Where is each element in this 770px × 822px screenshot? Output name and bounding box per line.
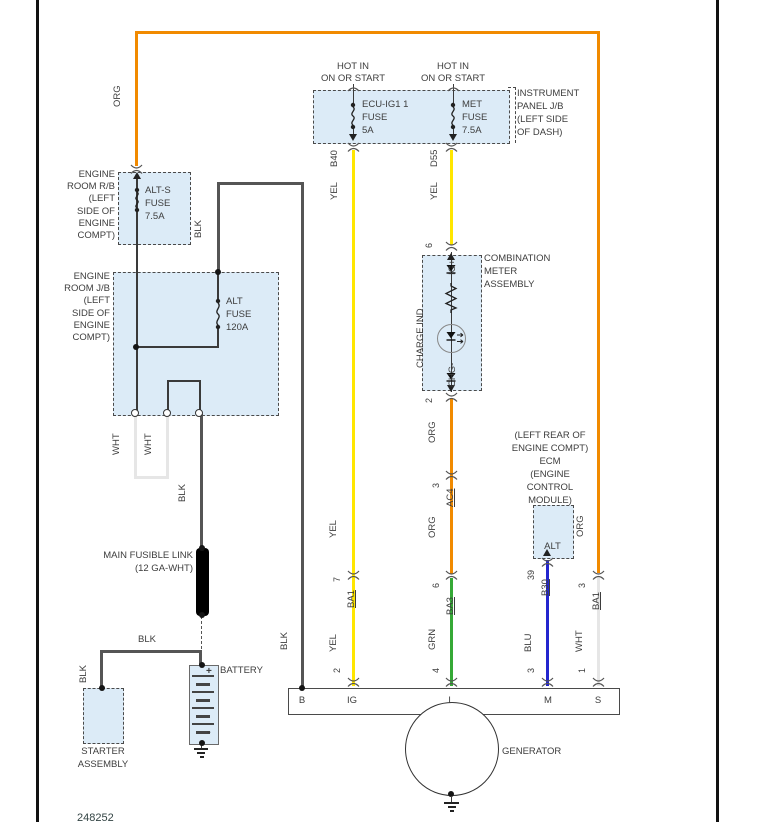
battery-plate (196, 683, 210, 686)
wire-color-label-wht: WHT (112, 433, 122, 455)
engine-room-rb-label-line: ROOM R/B (45, 181, 115, 193)
wire-blk-up (217, 182, 220, 274)
engine-room-rb-label: ENGINE ROOM R/B (LEFT SIDE OF ENGINE COM… (45, 169, 115, 242)
battery-plate (192, 707, 214, 709)
main-fusible-link-symbol (196, 548, 209, 616)
connector-label-b40: B40 (330, 150, 340, 167)
hot-in-left-line1: HOT IN (322, 61, 384, 72)
wire-blk-battery-horizontal (101, 650, 202, 653)
battery-plate (196, 699, 210, 702)
connector-icon-hotin-right (447, 86, 460, 92)
connector-icon-gen-l (445, 677, 458, 687)
connector-pin-ac4: 3 (431, 483, 441, 488)
wire-color-label-grn: GRN (428, 629, 438, 650)
wire-jb-loop-top (167, 380, 201, 382)
combination-meter-label-line: METER (484, 265, 550, 278)
wire-yel-met (450, 150, 453, 245)
meter-chg-minus-label: CHG- (448, 363, 458, 387)
engine-room-jb-label-line: ROOM J/B (40, 283, 110, 295)
ecm-label: (LEFT REAR OF ENGINE COMPT) ECM (ENGINE … (500, 429, 600, 507)
connector-pin-ba1-ig: 7 (332, 577, 342, 582)
generator-terminal-b: B (296, 695, 308, 706)
fuse-symbol-ecu-ig1 (348, 102, 358, 130)
instrument-panel-label-line: OF DASH) (517, 126, 579, 139)
connector-pin-b30: 39 (526, 570, 536, 580)
junction-dot (299, 685, 305, 691)
connector-label-ba1-s: BA1 (592, 592, 602, 610)
instrument-panel-label: INSTRUMENT PANEL J/B (LEFT SIDE OF DASH) (517, 87, 579, 139)
fuse-ecu-ig1-rating: 5A (362, 125, 374, 136)
engine-room-jb-label-line: ENGINE (40, 271, 110, 283)
engine-room-jb-label-line: (LEFT (40, 295, 110, 307)
wire-color-label-blk: BLK (280, 632, 290, 650)
generator-terminal-s: S (592, 695, 604, 706)
hot-in-right-line2: ON OR START (416, 73, 490, 84)
engine-room-rb-label-line: SIDE OF (45, 206, 115, 218)
ecm-label-line: (ENGINE (500, 468, 600, 481)
wire-color-label-wht: WHT (144, 433, 154, 455)
connector-label-ba1-ig: BA1 (347, 590, 357, 608)
battery-positive-terminal-dot (199, 662, 205, 668)
wire-color-label-yel: YEL (329, 634, 339, 652)
wire-color-label-blk: BLK (194, 220, 204, 238)
meter-ig-plus-label: IG+ (448, 259, 458, 275)
junction-dot (199, 545, 205, 551)
engine-room-rb-label-line: ENGINE (45, 218, 115, 230)
reference-number: 248252 (77, 813, 114, 822)
hot-in-left-line2: ON OR START (316, 73, 390, 84)
fuse-ecu-ig1-name: ECU-IG1 1 (362, 99, 408, 110)
fuse-alt-name: ALT (226, 296, 243, 307)
wire-color-label-wht: WHT (575, 630, 585, 652)
main-fusible-link-label: MAIN FUSIBLE LINK (12 GA-WHT) (95, 549, 193, 575)
engine-room-rb-label-line: ENGINE (45, 169, 115, 181)
instrument-panel-label-line: (LEFT SIDE (517, 113, 579, 126)
wire-color-label-org: ORG (428, 516, 438, 538)
junction-dot (215, 269, 221, 275)
blk-label-horizontal: BLK (138, 634, 156, 645)
connector-icon-ba1-ig (347, 570, 360, 580)
ecm-alt-terminal-label: ALT (533, 541, 572, 552)
ecm-label-line: CONTROL (500, 481, 600, 494)
connector-icon-ba3 (445, 570, 458, 580)
wire-blk-to-link (200, 414, 203, 549)
jb-terminal (163, 409, 171, 417)
connector-icon-b30 (541, 557, 554, 567)
wire-org-top-horizontal (135, 31, 600, 34)
battery-ground-icon (200, 756, 204, 758)
generator-ground-icon (444, 802, 459, 804)
fuse-alt-s-rating: 7.5A (145, 211, 165, 222)
hot-in-right-line1: HOT IN (422, 61, 484, 72)
wire-org-left-vertical (135, 31, 138, 166)
wiring-diagram-page: + - B IG L M S GENERATOR (0, 0, 770, 822)
meter-pin-bottom: 2 (424, 398, 434, 403)
wire-color-label-blk: BLK (178, 484, 188, 502)
page-border-right (716, 0, 719, 822)
connector-icon-meter-top (445, 241, 458, 251)
fuse-alt-s-name: ALT-S (145, 185, 171, 196)
meter-pin-top: 6 (424, 243, 434, 248)
connector-icon-hotin-left (347, 86, 360, 92)
engine-room-jb-label-line: SIDE OF (40, 308, 110, 320)
combination-meter-label-line: ASSEMBLY (484, 278, 550, 291)
connector-icon-ba1-s (592, 570, 605, 580)
generator-ground-icon (450, 810, 454, 812)
starter-assembly-label-line: STARTER (72, 745, 134, 758)
generator-pin-m: 3 (526, 668, 536, 673)
battery-plate (196, 715, 210, 718)
fuse-alt-word: FUSE (226, 309, 251, 320)
combination-meter-label-line: COMBINATION (484, 252, 550, 265)
arrow-down-icon (449, 134, 457, 141)
engine-room-rb-label-line: COMPT) (45, 230, 115, 242)
resistor-icon (444, 283, 458, 313)
wire-color-label-yel: YEL (430, 182, 440, 200)
generator-label: GENERATOR (502, 746, 561, 757)
main-fusible-link-label-line: (12 GA-WHT) (95, 562, 193, 575)
fuse-met-name: MET (462, 99, 482, 110)
connector-icon-ac4 (445, 470, 458, 480)
fuse-symbol-met (448, 102, 458, 130)
ecm-label-line: MODULE) (500, 494, 600, 507)
ecm-label-line: ECM (500, 455, 600, 468)
wire-wht-u-left (134, 414, 137, 478)
jb-terminal (131, 409, 139, 417)
connector-icon-b40 (347, 142, 360, 152)
starter-assembly-label: STARTER ASSEMBLY (72, 745, 134, 771)
engine-room-jb-label-line: COMPT) (40, 332, 110, 344)
connector-icon-gen-s (592, 677, 605, 687)
generator-terminal-ig: IG (344, 695, 360, 706)
battery-plate (192, 723, 214, 725)
starter-assembly-box (83, 688, 124, 744)
connector-label-d55: D55 (430, 150, 440, 167)
instrument-panel-label-line: PANEL J/B (517, 100, 579, 113)
instrument-panel-label-bracket (508, 87, 516, 143)
starter-assembly-label-line: ASSEMBLY (72, 758, 134, 771)
connector-icon-d55 (445, 142, 458, 152)
fuse-symbol-alt-s (132, 187, 142, 213)
battery-label: BATTERY (220, 665, 263, 676)
wire-jb-fuse-bottom (217, 327, 219, 347)
combination-meter-label: COMBINATION METER ASSEMBLY (484, 252, 550, 291)
generator-terminal-l: L (444, 695, 458, 706)
connector-pin-ba1-s: 3 (577, 583, 587, 588)
engine-room-jb-label-line: ENGINE (40, 320, 110, 332)
wire-color-label-blu: BLU (524, 634, 534, 652)
connector-pin-ba3: 6 (431, 583, 441, 588)
wire-color-label-blk: BLK (79, 665, 89, 683)
wire-color-label-org: ORG (576, 515, 586, 537)
wire-color-label-yel: YEL (329, 520, 339, 538)
generator-pin-s: 1 (577, 668, 587, 673)
fuse-met-word: FUSE (462, 112, 487, 123)
generator-pin-ig: 2 (332, 668, 342, 673)
battery-plus-sign: + (206, 666, 212, 677)
junction-dot (199, 612, 205, 618)
wire-wht-u-right (166, 414, 169, 478)
battery-plate (192, 691, 214, 693)
battery-negative-terminal-dot (199, 740, 205, 746)
ecm-label-line: (LEFT REAR OF (500, 429, 600, 442)
wire-blk-over (217, 182, 303, 185)
fuse-symbol-alt (213, 298, 223, 330)
connector-icon-gen-ig (347, 677, 360, 687)
starter-terminal-dot (99, 685, 105, 691)
fuse-alt-rating: 120A (226, 322, 248, 333)
generator-pin-l: 4 (431, 668, 441, 673)
fuse-alt-s-word: FUSE (145, 198, 170, 209)
wire-blk-b-terminal (301, 182, 304, 689)
battery-ground-icon (197, 752, 205, 754)
fuse-ecu-ig1-word: FUSE (362, 112, 387, 123)
wire-jb-horizontal (135, 346, 219, 348)
connector-icon-gen-m (541, 677, 554, 687)
jb-terminal (195, 409, 203, 417)
connector-label-b30: B30 (541, 579, 551, 596)
ecm-label-line: ENGINE COMPT) (500, 442, 600, 455)
junction-dot (133, 344, 139, 350)
wire-blk-starter-drop (100, 650, 103, 690)
wire-grn-l (450, 578, 453, 686)
fuse-met-rating: 7.5A (462, 125, 482, 136)
arrow-down-icon (349, 134, 357, 141)
engine-room-jb-label: ENGINE ROOM J/B (LEFT SIDE OF ENGINE COM… (40, 271, 110, 344)
meter-charge-ind-label: CHARGE IND (416, 308, 426, 368)
connector-icon-alt-s (130, 164, 143, 174)
wire-org-meter-out (450, 398, 453, 574)
generator-ground-icon (448, 806, 456, 808)
instrument-panel-label-line: INSTRUMENT (517, 87, 579, 100)
connector-label-ac4: AC4 (446, 489, 456, 507)
generator-terminal-m: M (540, 695, 556, 706)
battery-ground-icon (194, 748, 208, 750)
page-border-left (36, 0, 39, 822)
main-fusible-link-label-line: MAIN FUSIBLE LINK (95, 549, 193, 562)
wire-alts-column (136, 178, 138, 414)
wire-jb-fuse-top (217, 272, 219, 300)
wire-color-label-org: ORG (428, 421, 438, 443)
battery-minus-sign: - (207, 727, 211, 738)
engine-room-rb-label-line: (LEFT (45, 193, 115, 205)
led-light-arrows-icon (456, 332, 467, 345)
connector-icon-meter-bottom (445, 392, 458, 402)
wire-color-label-yel: YEL (330, 182, 340, 200)
connector-label-ba3: BA3 (446, 597, 456, 615)
wire-wht-u-bottom (134, 476, 169, 479)
generator-circle (405, 702, 499, 796)
wire-color-label-org: ORG (113, 85, 123, 107)
